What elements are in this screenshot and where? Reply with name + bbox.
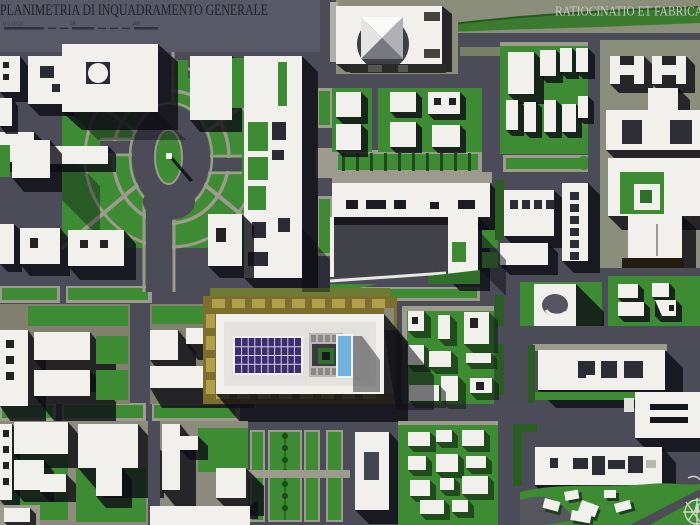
svg-text:100: 100 [132, 21, 141, 27]
svg-text:RATIOCINATIO ET FABRICA: RATIOCINATIO ET FABRICA [555, 4, 700, 19]
svg-text:0 5 10 25: 0 5 10 25 [3, 21, 24, 27]
svg-text:PLANIMETRIA DI INQUADRAMENTO G: PLANIMETRIA DI INQUADRAMENTO GENERALE [0, 2, 268, 19]
svg-text:50: 50 [70, 21, 76, 27]
